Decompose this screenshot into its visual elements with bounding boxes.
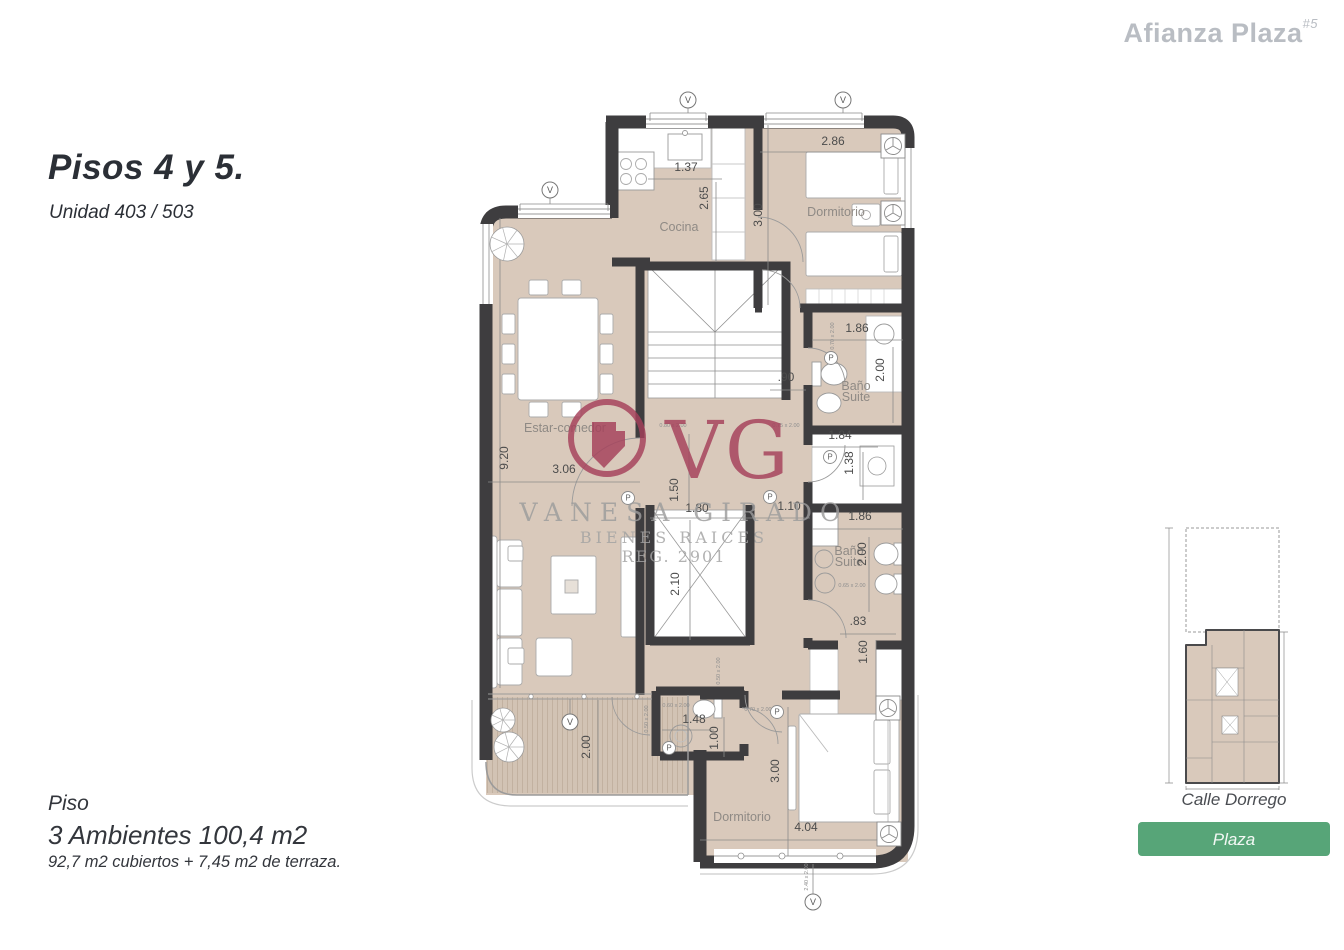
plaza-button[interactable]: Plaza [1138,822,1330,856]
stove [614,152,654,190]
dimension-label: 2.00 [579,735,593,759]
kitchen-cabinet [712,128,745,260]
door-p-marker-letter: P [827,453,832,462]
bed-runner [788,726,796,810]
dimension-label: 1.37 [674,160,698,174]
dimension-label: 3.00 [768,759,782,783]
dimension-label: 1.00 [707,726,721,750]
room-label: Suite [842,390,871,404]
bidet [875,574,897,594]
dimension-label: 1.86 [845,321,869,335]
watermark-line3: REG. 2901 [622,547,727,566]
watermark-name: VANESA GIRADO [519,498,849,527]
washing-machine [860,446,894,486]
door-size-label: 0.65 x 2.00 [838,583,865,589]
dimension-label: 2.65 [697,186,711,210]
vent-marker-letter: V [547,185,553,195]
dimension-label: 2.00 [873,358,887,382]
dimension-label: 3.06 [552,462,576,476]
dimension-label: 1.38 [842,451,856,475]
site-map [1165,528,1288,790]
door-p-marker-letter: P [774,708,779,717]
door-size-label: 2.40 x 2.00 [804,863,810,890]
dimension-label: 4.04 [794,820,818,834]
door-size-label: 0.60 x 2.00 [662,703,689,709]
door-size-label: 0.70 x 2.00 [744,707,771,713]
door-p-marker-letter: P [666,744,671,753]
site-footprint [1186,630,1279,783]
room-label: Cocina [660,220,699,234]
room-label: Dormitorio [713,810,771,824]
door-size-label: 0.50 x 2.00 [716,657,722,684]
dimension-label: 3.00 [751,203,765,227]
dining-table [518,298,598,400]
dimension-label: 2.86 [821,134,845,148]
dimension-label: 2.00 [855,542,869,566]
dimension-label: 1.84 [828,428,852,442]
room-label: Dormitorio [807,205,865,219]
ottoman [536,638,572,676]
door-size-label: 0.50 x 2.00 [644,705,650,732]
door-p-marker-letter: P [828,354,833,363]
watermark-line2: BIENES RAICES [580,528,768,547]
dimension-label: .90 [778,370,795,384]
dimension-label: 9.20 [497,446,511,470]
closet [810,648,838,724]
kitchen-sink [668,134,702,160]
closet [876,648,904,700]
dimension-label: .83 [850,614,867,628]
page: Afianza Plaza#5 Pisos 4 y 5. Unidad 403 … [0,0,1344,950]
watermark-monogram: VG [664,404,791,497]
bidet [817,393,841,413]
vent-marker-letter: V [810,897,816,907]
dimension-label: 2.10 [668,572,682,596]
vent-marker-letter: V [567,717,573,727]
dimension-label: 1.48 [682,712,706,726]
door-size-label: 0.70 x 2.00 [830,322,836,349]
vent-marker-letter: V [685,95,691,105]
dimension-label: 1.60 [856,640,870,664]
street-label: Calle Dorrego [1138,790,1330,810]
dimension-label: 1.86 [848,509,872,523]
toilet [874,543,898,565]
vent-marker-letter: V [840,95,846,105]
